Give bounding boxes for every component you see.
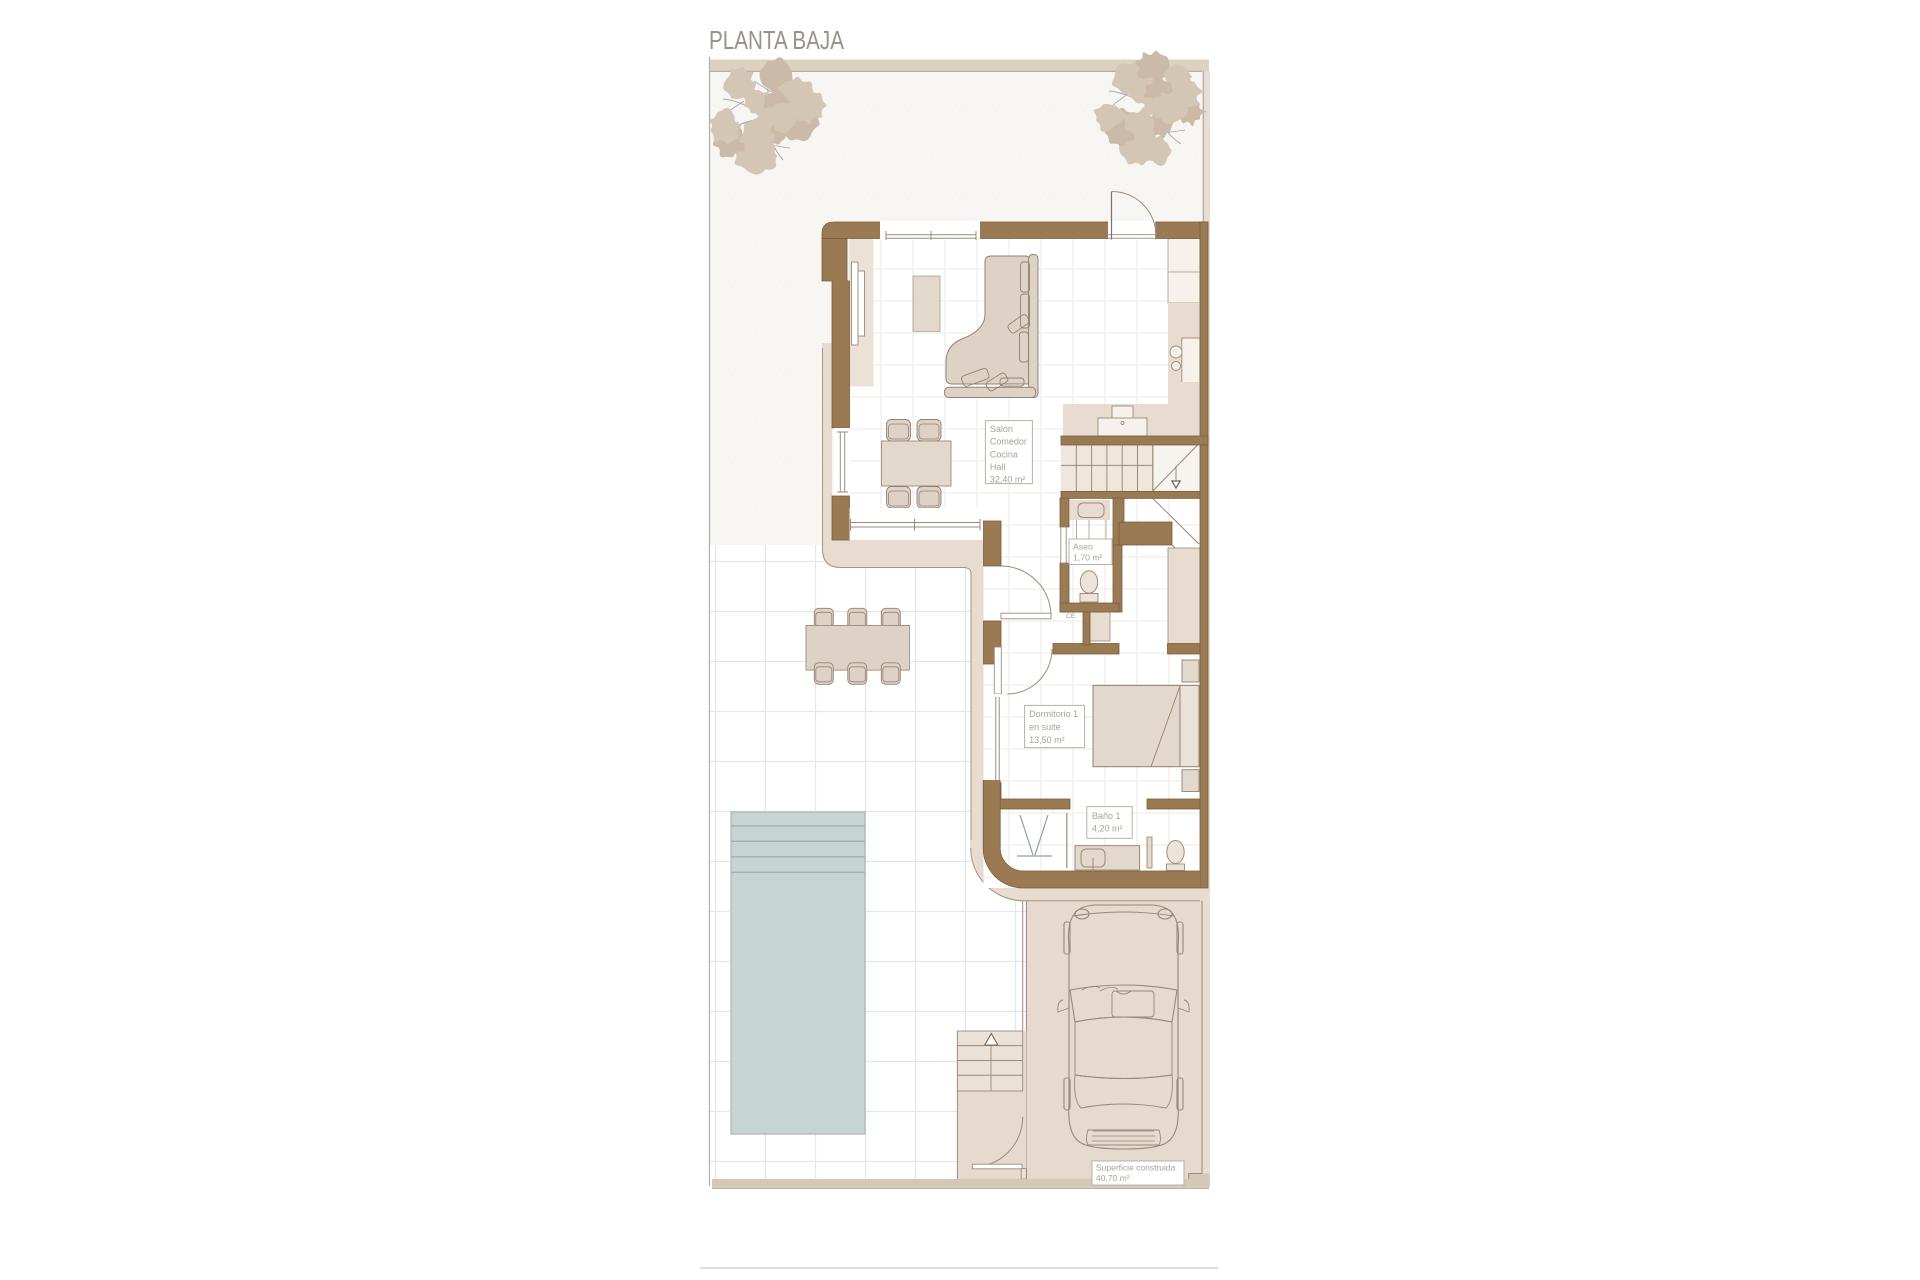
svg-text:4,20 m²: 4,20 m² bbox=[1092, 824, 1123, 834]
svg-text:Dormitorio 1: Dormitorio 1 bbox=[1029, 709, 1078, 719]
svg-text:PLANTA BAJA: PLANTA BAJA bbox=[709, 27, 844, 55]
svg-text:Hall: Hall bbox=[990, 462, 1006, 472]
svg-text:Comedor: Comedor bbox=[990, 437, 1027, 447]
svg-text:en suite: en suite bbox=[1029, 722, 1061, 732]
svg-text:13,50 m²: 13,50 m² bbox=[1029, 735, 1065, 745]
svg-text:Superficie construida: Superficie construida bbox=[1096, 1163, 1176, 1173]
svg-text:Cocina: Cocina bbox=[990, 449, 1018, 459]
svg-text:Aseo: Aseo bbox=[1073, 542, 1093, 552]
svg-text:Salón: Salón bbox=[990, 424, 1013, 434]
svg-text:1,70 m²: 1,70 m² bbox=[1073, 553, 1103, 563]
svg-text:32,40 m²: 32,40 m² bbox=[990, 475, 1026, 485]
svg-text:Baño 1: Baño 1 bbox=[1092, 811, 1121, 821]
svg-text:CE: CE bbox=[1066, 613, 1076, 620]
svg-text:40,70 m²: 40,70 m² bbox=[1096, 1173, 1130, 1183]
